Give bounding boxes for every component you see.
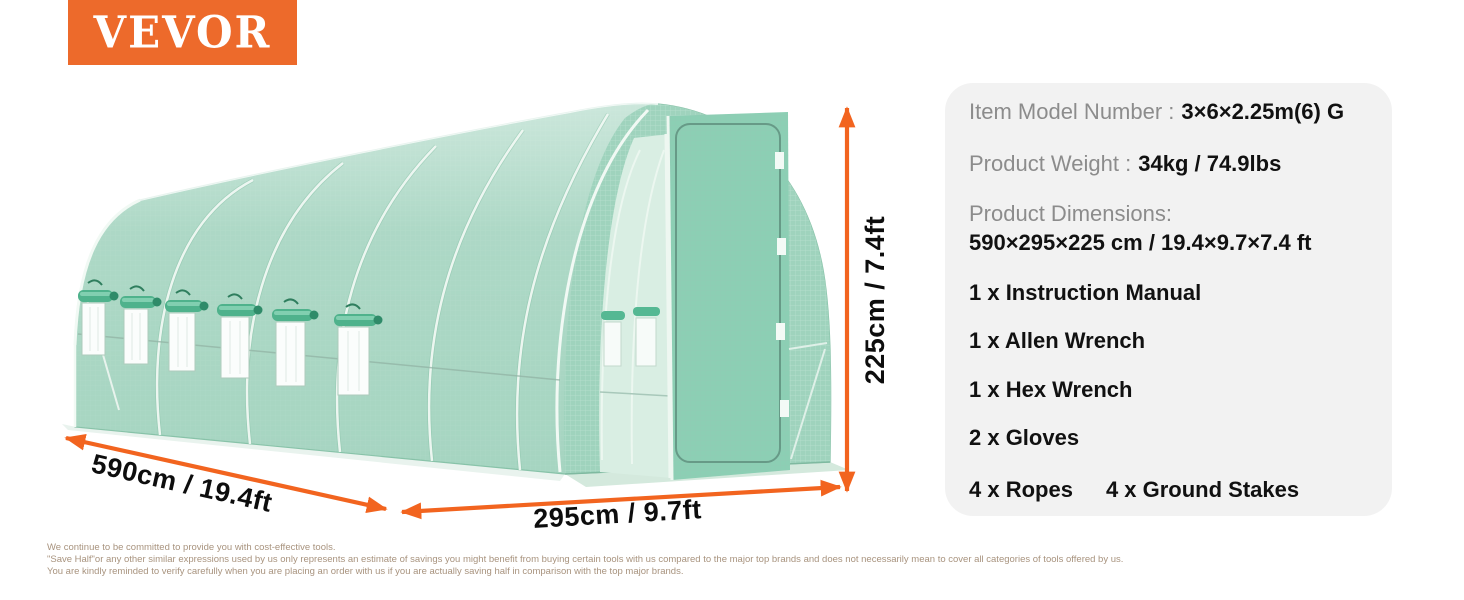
- dimension-height-label: 225cm / 7.4ft: [860, 216, 890, 385]
- brand-logo: VEVOR: [68, 0, 297, 65]
- dimensions-value: 590×295×225 cm / 19.4×9.7×7.4 ft: [969, 230, 1312, 255]
- included-item: 1 x Instruction Manual: [969, 280, 1201, 306]
- dimension-depth-label: 590cm / 19.4ft: [89, 448, 275, 517]
- model-label: Item Model Number :: [969, 99, 1174, 124]
- spec-panel: Item Model Number :3×6×2.25m(6) G Produc…: [945, 83, 1392, 516]
- disclaimer-line: "Save Half"or any other similar expressi…: [47, 554, 1123, 566]
- included-item: 4 x Ropes: [969, 477, 1073, 503]
- included-item: 2 x Gloves: [969, 425, 1079, 451]
- disclaimer-line: We continue to be committed to provide y…: [47, 542, 1123, 554]
- disclaimer-line: You are kindly reminded to verify carefu…: [47, 566, 1123, 578]
- dimension-width-label: 295cm / 9.7ft: [532, 494, 702, 534]
- interior-window: [633, 307, 660, 366]
- included-item: 4 x Ground Stakes: [1106, 477, 1299, 503]
- weight-value: 34kg / 74.9lbs: [1138, 151, 1281, 176]
- brand-logo-text: VEVOR: [94, 11, 272, 55]
- door-panel: [668, 112, 790, 480]
- disclaimer: We continue to be committed to provide y…: [47, 542, 1123, 579]
- included-item: 1 x Hex Wrench: [969, 377, 1132, 403]
- included-item-row: 4 x Ropes 4 x Ground Stakes: [969, 477, 1299, 503]
- product-infographic: 590cm / 19.4ft 295cm / 9.7ft 225cm / 7.4…: [0, 0, 1464, 600]
- spec-row-model: Item Model Number :3×6×2.25m(6) G: [969, 99, 1344, 125]
- model-value: 3×6×2.25m(6) G: [1181, 99, 1344, 124]
- included-item: 1 x Allen Wrench: [969, 328, 1145, 354]
- spec-row-dimensions-value: 590×295×225 cm / 19.4×9.7×7.4 ft: [969, 230, 1312, 256]
- spec-row-dimensions-label: Product Dimensions:: [969, 201, 1172, 227]
- dimensions-label: Product Dimensions:: [969, 201, 1172, 226]
- interior-window: [601, 311, 625, 366]
- spec-row-weight: Product Weight :34kg / 74.9lbs: [969, 151, 1281, 177]
- weight-label: Product Weight :: [969, 151, 1131, 176]
